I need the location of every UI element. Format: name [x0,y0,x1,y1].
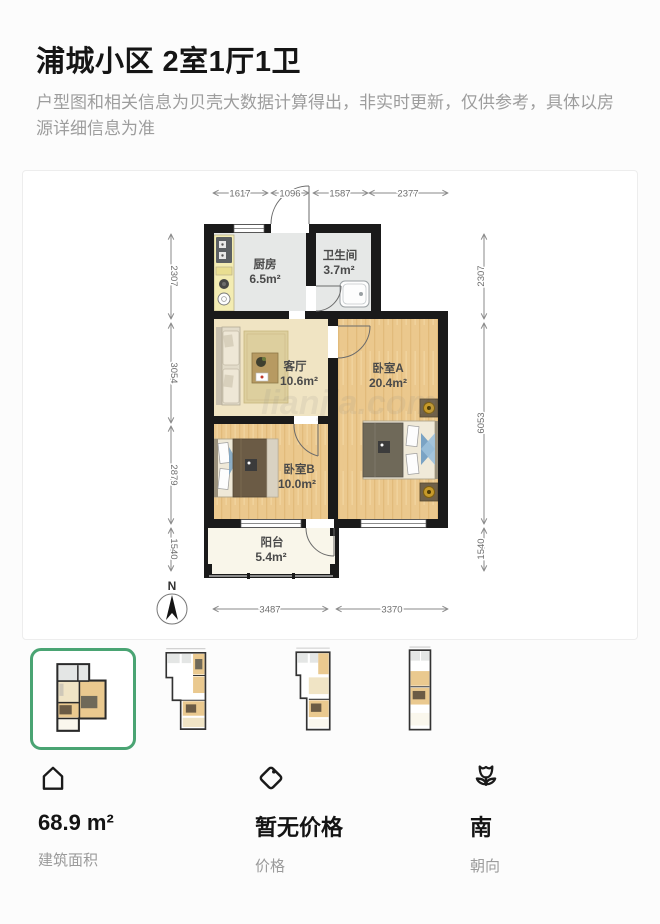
room-area-living: 10.6m² [280,374,318,388]
stat-orientation-label: 朝向 [470,855,502,876]
house-icon [38,762,114,796]
dimension-label: 3054 [168,362,179,383]
stat-orientation: 南 朝向 [470,762,502,876]
dimension-label: 2307 [476,265,487,286]
floorplan-viewer[interactable]: lianjia.com [22,170,638,640]
dimension-label: 6053 [476,412,487,433]
room-label-balcony: 阳台 [261,535,284,549]
north-label: N [168,579,177,593]
room-label-bedroom-a: 卧室A [372,361,403,375]
dimension-label: 1617 [229,189,250,200]
dimension-label: 1540 [168,538,179,559]
room-label-bedroom-b: 卧室B [283,462,314,476]
sofa [216,327,240,405]
dimension-label: 1587 [329,189,350,200]
room-area-bedroom-b: 10.0m² [278,477,316,491]
dimension-label: 3487 [259,605,280,616]
room-area-kitchen: 6.5m² [249,272,280,286]
mini-floorplan-4 [402,646,438,738]
room-label-living: 客厅 [283,359,307,373]
bathtub [340,281,369,307]
thumbnail-2[interactable] [158,646,224,738]
stat-price-label: 价格 [255,855,343,876]
thumbnail-4[interactable] [402,646,438,738]
stat-area-label: 建筑面积 [38,849,114,870]
room-label-kitchen: 厨房 [254,257,277,271]
kitchen-counter [214,235,234,311]
tag-icon [255,762,343,796]
room-label-bathroom: 卫生间 [323,248,358,262]
stat-price-value: 暂无价格 [255,810,343,842]
mini-floorplan-1 [47,659,119,739]
north-indicator: N [157,579,187,624]
dimension-label: 2879 [168,464,179,485]
page-title: 浦城小区 2室1厅1卫 [36,38,626,80]
floorplan-image: lianjia.com [23,171,637,639]
flower-icon [470,762,502,796]
room-area-bathroom: 3.7m² [323,263,354,277]
dimension-label: 2377 [397,189,418,200]
stat-orientation-value: 南 [470,810,502,842]
stat-area: 68.9 m² 建筑面积 [38,762,114,870]
mini-floorplan-2 [158,646,224,738]
room-area-bedroom-a: 20.4m² [369,376,407,390]
thumbnail-3[interactable] [286,646,340,738]
floorplan-thumbnails [0,646,660,754]
bed-b [214,439,278,497]
dimension-label: 1096 [279,189,300,200]
dimension-label: 1540 [476,538,487,559]
room-area-balcony: 5.4m² [255,550,286,564]
thumbnail-1-selected[interactable] [30,648,136,750]
dimension-label: 3370 [381,605,402,616]
dimension-label: 2307 [168,265,179,286]
mini-floorplan-3 [286,646,340,738]
stat-area-value: 68.9 m² [38,810,114,836]
disclaimer-text: 户型图和相关信息为贝壳大数据计算得出，非实时更新，仅供参考，具体以房源详细信息为… [36,90,624,143]
stat-price: 暂无价格 价格 [255,762,343,876]
